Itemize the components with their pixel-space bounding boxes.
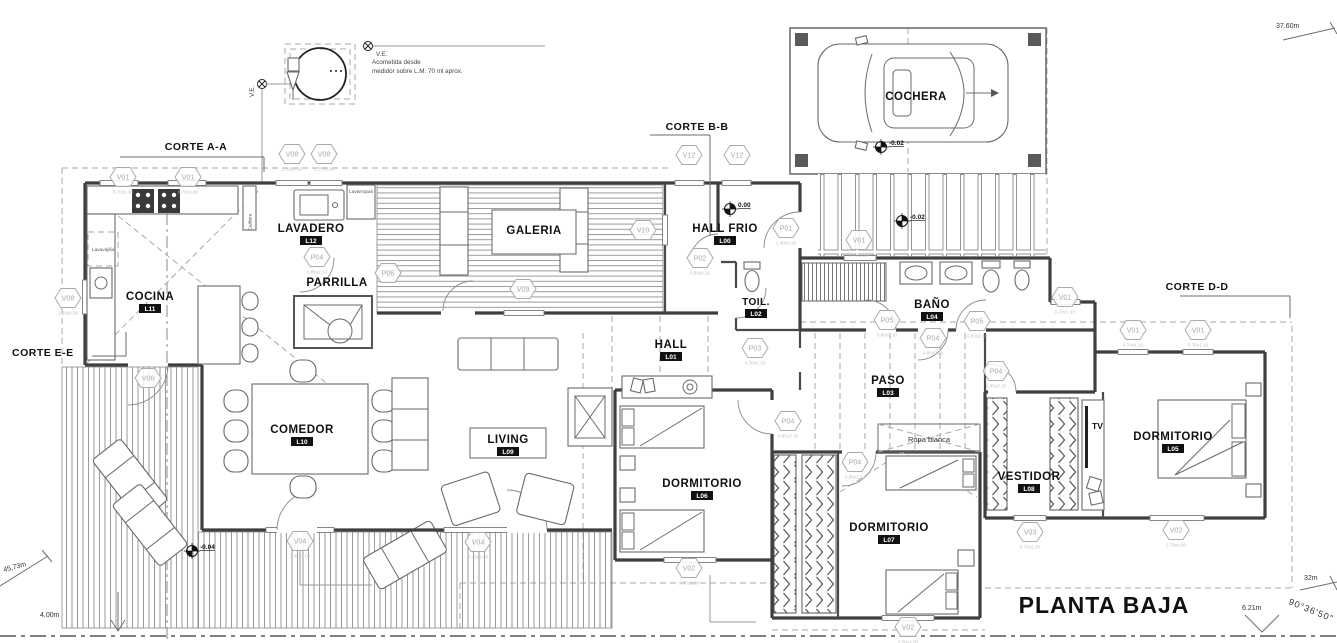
svg-text:V04: V04 xyxy=(472,540,485,547)
svg-text:L05: L05 xyxy=(1167,446,1179,453)
closet xyxy=(774,455,796,613)
armchair xyxy=(516,473,575,526)
svg-text:L00: L00 xyxy=(719,238,731,245)
room-label-hall-frio: HALL FRIOL00 xyxy=(692,223,758,245)
svg-text:V01: V01 xyxy=(1059,295,1072,302)
dim-bottom-left: 4,00m xyxy=(40,612,60,619)
tv-label: TV xyxy=(1092,421,1103,431)
column xyxy=(795,33,808,46)
svg-text:0.80x2.10: 0.80x2.10 xyxy=(967,334,988,339)
dim-left: 45,73m xyxy=(3,561,28,574)
tag-v02-icon: V022.70x1.50 xyxy=(676,559,702,586)
closet xyxy=(1050,398,1078,510)
svg-text:P04: P04 xyxy=(782,419,795,426)
barbecue-grill xyxy=(294,296,372,348)
svg-text:P05: P05 xyxy=(971,319,984,326)
svg-text:0.85x2.10: 0.85x2.10 xyxy=(923,351,944,356)
tag-v01-icon: V010.70x1.00 xyxy=(175,168,201,195)
tag-p04-icon: P040.85x2.10 xyxy=(304,248,330,275)
closet xyxy=(987,398,1007,510)
tag-v01-icon: V010.70x1.10 xyxy=(1052,288,1078,315)
svg-text:-0.02: -0.02 xyxy=(889,140,904,147)
tag-p05-icon: P050.80x2.10 xyxy=(964,312,990,339)
svg-text:L08: L08 xyxy=(1023,486,1035,493)
tag-v01-icon: V010.70x1.10 xyxy=(1120,321,1146,348)
svg-text:P04: P04 xyxy=(927,336,940,343)
svg-text:P03: P03 xyxy=(749,346,762,353)
caldera-label: Caldera xyxy=(248,213,254,230)
tag-v02-icon: V022.70x1.50 xyxy=(895,618,921,643)
room-label-lavadero: LAVADEROL12 xyxy=(278,223,345,245)
tag-p01-icon: P011.40x2.20 xyxy=(773,219,799,246)
svg-text:V06: V06 xyxy=(142,376,155,383)
svg-text:2.35x1.00: 2.35x1.00 xyxy=(58,311,79,316)
svg-text:3.45x2.05: 3.45x2.05 xyxy=(290,554,311,559)
svg-text:PASO: PASO xyxy=(871,375,905,387)
tag-p04-icon: P040.85x2.10 xyxy=(920,329,946,356)
svg-text:V08: V08 xyxy=(318,152,331,159)
svg-text:L10: L10 xyxy=(296,439,308,446)
valve-icon-left xyxy=(258,80,267,89)
svg-text:0.70x1.20: 0.70x1.20 xyxy=(1020,545,1041,550)
svg-text:L11: L11 xyxy=(145,306,156,313)
svg-text:L07: L07 xyxy=(883,537,895,544)
tag-v08-icon: V082.35x1.00 xyxy=(279,145,305,172)
room-label-toil: TOIL.L02 xyxy=(742,297,770,318)
room-label-paso: PASOL03 xyxy=(871,375,905,397)
dim-angle: 90°36'50" xyxy=(1287,597,1335,624)
svg-text:V08: V08 xyxy=(286,152,299,159)
slatted-closet xyxy=(802,263,886,301)
tag-p04-icon: P040.85x2.10 xyxy=(775,412,801,439)
hall-console xyxy=(622,376,712,398)
svg-text:L04: L04 xyxy=(926,314,938,321)
svg-text:0.70x1.10: 0.70x1.10 xyxy=(1055,310,1076,315)
svg-text:-0.02: -0.02 xyxy=(910,214,925,221)
vestidor-closets xyxy=(987,398,1104,510)
ropa-blanca-label: Ropa blanca xyxy=(908,435,951,444)
svg-text:TOIL.: TOIL. xyxy=(742,297,770,308)
kitchen-counter xyxy=(87,186,258,364)
svg-text:V10: V10 xyxy=(637,228,650,235)
svg-text:L02: L02 xyxy=(750,311,762,318)
room-label-dormitorio-06: DORMITORIOL06 xyxy=(662,478,742,500)
svg-text:PARRILLA: PARRILLA xyxy=(306,277,367,289)
closet xyxy=(802,455,836,613)
svg-text:-0.04: -0.04 xyxy=(200,544,215,551)
toilet xyxy=(983,270,999,292)
dim-top-right: 37.60m xyxy=(1276,23,1300,30)
valve-left-label: V.E. xyxy=(249,85,256,97)
svg-text:VESTIDOR: VESTIDOR xyxy=(998,471,1061,483)
dim-bottom-right: 6.21m xyxy=(1242,605,1262,612)
tag-v04-icon: V043.45x2.05 xyxy=(287,532,313,559)
valve-icon-right xyxy=(364,42,373,51)
svg-text:0.85x2.10: 0.85x2.10 xyxy=(986,384,1007,389)
bedroom-07-furniture xyxy=(878,424,980,614)
svg-text:P04: P04 xyxy=(990,369,1003,376)
kitchen-island xyxy=(198,286,240,364)
svg-text:0.85x2.10: 0.85x2.10 xyxy=(778,434,799,439)
svg-text:V12: V12 xyxy=(731,153,744,160)
bed xyxy=(620,406,704,448)
corte-dd-label: CORTE D-D xyxy=(1166,281,1229,293)
svg-text:V12: V12 xyxy=(683,153,696,160)
tag-v01-icon: V010.70x1.10 xyxy=(846,231,872,258)
level-marker-icon: 0.00 xyxy=(722,201,751,217)
floor-plan-sheet: V.E. V.E. Acometida desde medidor sobre … xyxy=(0,0,1337,643)
acometida-note-line2: medidor sobre L.M. 70 ml aprox. xyxy=(372,68,463,75)
tag-v03-icon: V030.70x1.20 xyxy=(1017,523,1043,550)
svg-text:2.70x1.50: 2.70x1.50 xyxy=(898,640,919,643)
svg-text:L09: L09 xyxy=(502,449,514,456)
svg-text:3.45x2.05: 3.45x2.05 xyxy=(468,555,489,560)
svg-text:2.70x1.50: 2.70x1.50 xyxy=(679,581,700,586)
svg-text:V02: V02 xyxy=(683,566,696,573)
acometida-note-line1: Acometida desde xyxy=(372,59,421,66)
svg-text:P02: P02 xyxy=(694,256,707,263)
stove-icon xyxy=(158,189,180,213)
tag-v06-icon: V06 xyxy=(135,369,161,388)
room-label-bano: BAÑOL04 xyxy=(914,298,950,321)
tv-panel xyxy=(1085,406,1088,468)
svg-text:P05: P05 xyxy=(881,318,894,325)
tag-p06-icon: P06 xyxy=(375,264,401,283)
room-label-galeria: GALERIA xyxy=(506,225,561,237)
svg-text:0.70x1.00: 0.70x1.00 xyxy=(178,190,199,195)
stove-icon xyxy=(132,189,154,213)
lavavajilla-label: Lavavajilla xyxy=(92,247,115,253)
svg-text:HALL FRIO: HALL FRIO xyxy=(692,223,758,235)
svg-text:COCHERA: COCHERA xyxy=(885,91,947,103)
tag-p04-icon: P040.85x2.10 xyxy=(842,453,868,480)
valve-right-label: V.E. xyxy=(376,51,388,58)
tag-v08-icon: V082.35x1.00 xyxy=(311,145,337,172)
svg-text:0.70x1.10: 0.70x1.10 xyxy=(1188,343,1209,348)
svg-text:0.80x2.10: 0.80x2.10 xyxy=(877,333,898,338)
svg-text:L06: L06 xyxy=(696,493,708,500)
tag-v09-icon: V09 xyxy=(510,280,536,299)
svg-text:V09: V09 xyxy=(517,287,530,294)
bed xyxy=(620,510,704,552)
column xyxy=(1028,154,1041,167)
svg-text:0.85x2.10: 0.85x2.10 xyxy=(307,270,328,275)
svg-text:V02: V02 xyxy=(902,625,915,632)
svg-text:LAVADERO: LAVADERO xyxy=(278,223,345,235)
room-label-parrilla: PARRILLA xyxy=(306,277,367,289)
lavarropas-label: Lavarropas xyxy=(349,189,374,195)
tag-v04-icon: V043.45x2.05 xyxy=(465,533,491,560)
svg-text:HALL: HALL xyxy=(655,339,688,351)
svg-text:P01: P01 xyxy=(780,226,793,233)
column xyxy=(1028,33,1041,46)
svg-text:COCINA: COCINA xyxy=(126,291,174,303)
room-label-cochera: COCHERA xyxy=(885,91,947,103)
pump-icon xyxy=(287,58,299,100)
svg-text:L12: L12 xyxy=(305,238,317,245)
svg-text:0.85x2.10: 0.85x2.10 xyxy=(845,475,866,480)
svg-text:L03: L03 xyxy=(882,390,894,397)
svg-text:GALERIA: GALERIA xyxy=(506,225,561,237)
svg-text:P04: P04 xyxy=(849,460,862,467)
svg-text:0.90x2.10: 0.90x2.10 xyxy=(690,271,711,276)
svg-text:DORMITORIO: DORMITORIO xyxy=(1133,431,1213,443)
bidet xyxy=(1015,270,1029,290)
svg-text:L01: L01 xyxy=(665,354,677,361)
living-furniture xyxy=(392,338,612,526)
toilet-room-fixtures xyxy=(744,262,760,292)
room-label-dormitorio-07: DORMITORIOL07 xyxy=(849,522,929,544)
svg-text:0.00: 0.00 xyxy=(738,202,751,209)
tag-v01-icon: V010.70x1.10 xyxy=(1185,321,1211,348)
svg-text:COMEDOR: COMEDOR xyxy=(270,424,334,436)
cochera-garage xyxy=(790,28,1046,256)
svg-text:2.35x1.00: 2.35x1.00 xyxy=(314,167,335,172)
svg-text:V01: V01 xyxy=(182,175,195,182)
svg-text:LIVING: LIVING xyxy=(487,434,528,446)
svg-text:V01: V01 xyxy=(1192,328,1205,335)
svg-text:V01: V01 xyxy=(117,175,130,182)
svg-text:0.70x1.10: 0.70x1.10 xyxy=(1123,343,1144,348)
svg-text:V01: V01 xyxy=(853,238,866,245)
svg-text:0.70x2.10: 0.70x2.10 xyxy=(745,361,766,366)
svg-text:P04: P04 xyxy=(311,255,324,262)
stool xyxy=(242,318,258,336)
tag-p02-icon: P020.90x2.10 xyxy=(687,249,713,276)
tag-v02-icon: V022.70x1.50 xyxy=(1163,521,1189,548)
svg-text:2.70x1.50: 2.70x1.50 xyxy=(1166,543,1187,548)
svg-text:V02: V02 xyxy=(1170,528,1183,535)
water-tank xyxy=(294,48,346,100)
column xyxy=(795,154,808,167)
tag-p03-icon: P030.70x2.10 xyxy=(742,339,768,366)
bookshelf xyxy=(392,378,428,470)
svg-text:DORMITORIO: DORMITORIO xyxy=(662,478,742,490)
svg-text:V01: V01 xyxy=(1127,328,1140,335)
corte-ee-label: CORTE E-E xyxy=(12,347,74,359)
svg-text:1.40x2.20: 1.40x2.20 xyxy=(776,241,797,246)
tag-p04-icon: P040.85x2.10 xyxy=(983,362,1009,389)
sofa xyxy=(458,338,558,370)
tag-v12-icon: V12 xyxy=(724,146,750,165)
stool xyxy=(242,292,258,310)
svg-text:V03: V03 xyxy=(1024,530,1037,537)
tag-v10-icon: V10 xyxy=(630,221,656,240)
svg-text:0.70x1.10: 0.70x1.10 xyxy=(849,253,870,258)
floor-plan-drawing: V.E. V.E. Acometida desde medidor sobre … xyxy=(0,0,1337,643)
svg-text:BAÑO: BAÑO xyxy=(914,298,950,311)
tag-v01-icon: V010.70x1.00 xyxy=(110,168,136,195)
svg-text:0.70x1.00: 0.70x1.00 xyxy=(113,190,134,195)
tag-p05-icon: P050.80x2.10 xyxy=(874,311,900,338)
sheet-title: PLANTA BAJA xyxy=(1019,592,1190,618)
stool xyxy=(242,344,258,362)
svg-text:P06: P06 xyxy=(382,271,395,278)
svg-text:2.35x1.00: 2.35x1.00 xyxy=(282,167,303,172)
tag-v12-icon: V12 xyxy=(676,146,702,165)
tag-v08-icon: V082.35x1.00 xyxy=(55,289,81,316)
corte-aa-label: CORTE A-A xyxy=(165,141,227,153)
corte-bb-label: CORTE B-B xyxy=(666,121,729,133)
svg-text:V04: V04 xyxy=(294,539,307,546)
svg-text:DORMITORIO: DORMITORIO xyxy=(849,522,929,534)
dim-right: 32m xyxy=(1304,575,1318,582)
svg-text:V08: V08 xyxy=(62,296,75,303)
bathroom-fixtures xyxy=(900,261,1030,292)
armchair xyxy=(440,471,501,526)
